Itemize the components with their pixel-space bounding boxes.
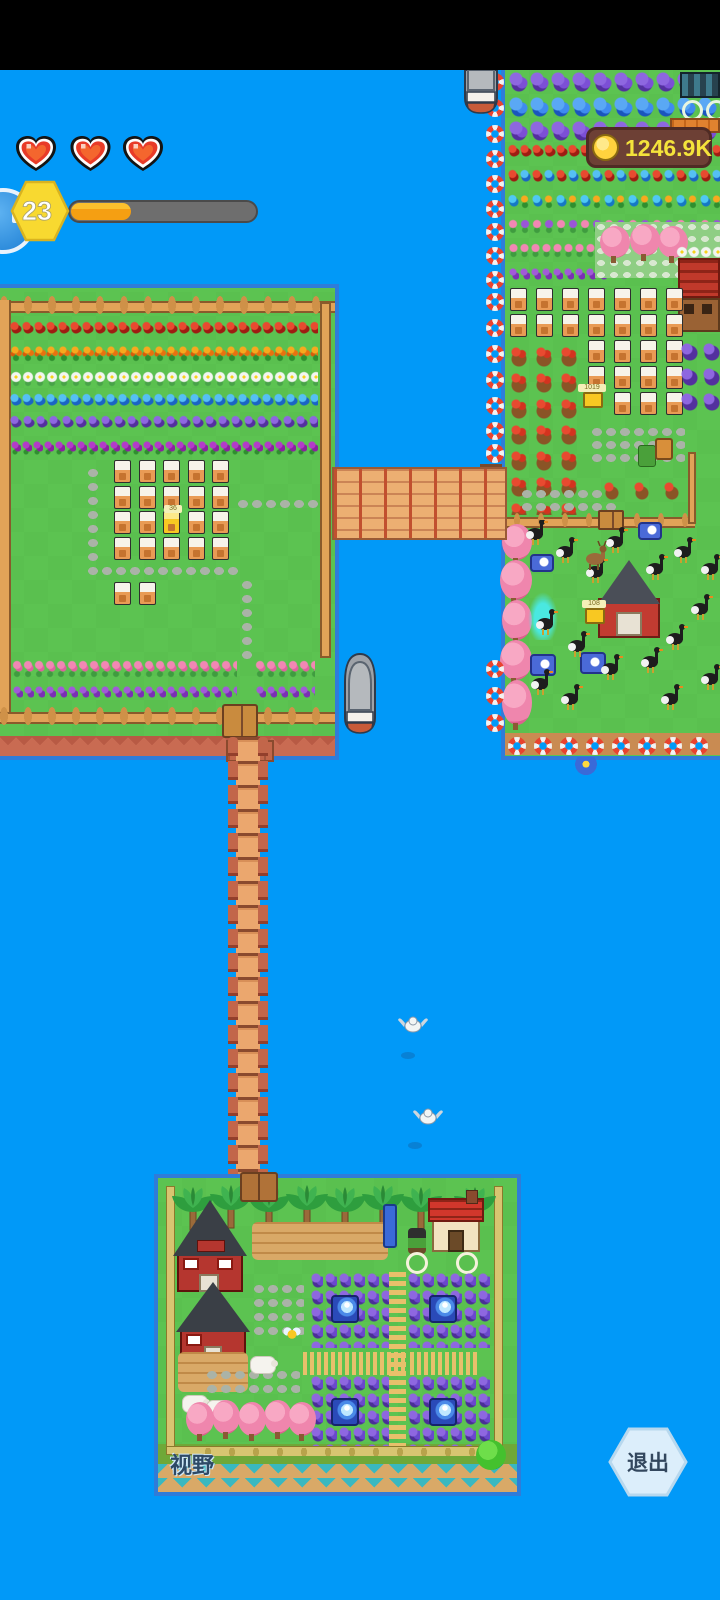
svg-text:23: 23 bbox=[22, 196, 52, 226]
svg-text:退出: 退出 bbox=[627, 1452, 669, 1475]
